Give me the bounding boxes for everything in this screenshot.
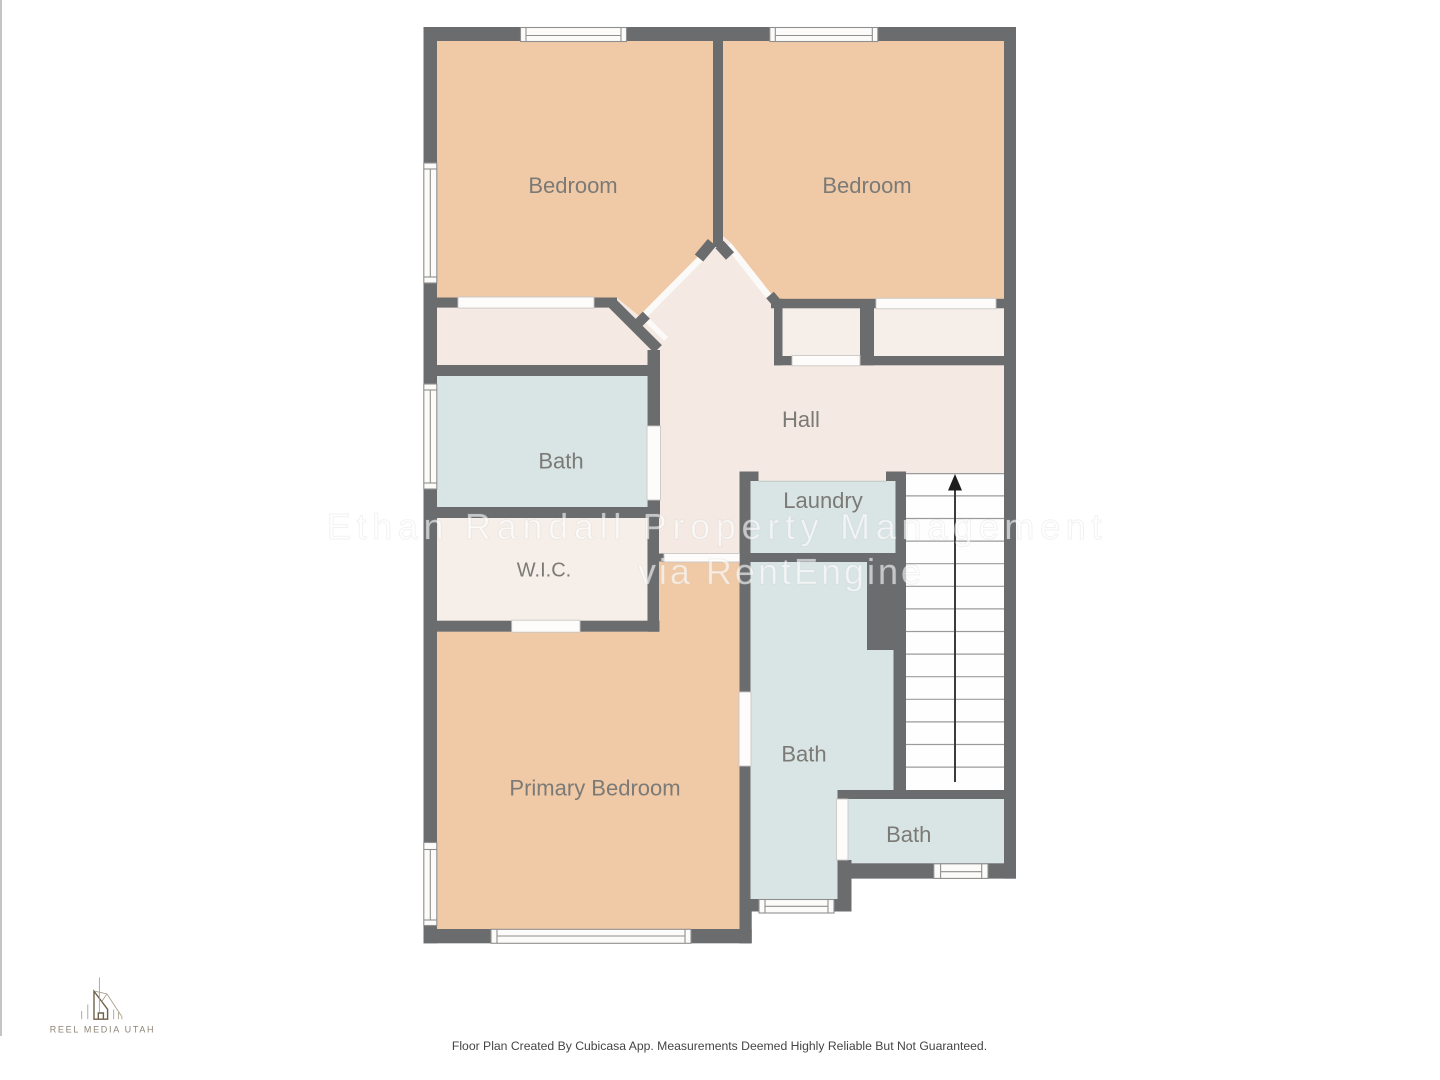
svg-text:Bath: Bath	[781, 742, 826, 767]
svg-text:Floor Plan Created By Cubicasa: Floor Plan Created By Cubicasa App. Meas…	[452, 1039, 987, 1053]
svg-text:Bath: Bath	[538, 449, 583, 474]
svg-text:REEL MEDIA UTAH: REEL MEDIA UTAH	[50, 1025, 156, 1035]
svg-text:Hall: Hall	[782, 407, 820, 432]
svg-text:Bath: Bath	[886, 822, 931, 847]
svg-text:Primary Bedroom: Primary Bedroom	[509, 776, 680, 801]
svg-text:Bedroom: Bedroom	[822, 173, 911, 198]
svg-text:Laundry: Laundry	[783, 488, 863, 513]
svg-text:Ethan Randall Property Managem: Ethan Randall Property Management	[327, 506, 1107, 547]
svg-text:via RentEngine: via RentEngine	[638, 551, 924, 592]
svg-text:W.I.C.: W.I.C.	[517, 560, 571, 582]
svg-text:Bedroom: Bedroom	[528, 173, 617, 198]
